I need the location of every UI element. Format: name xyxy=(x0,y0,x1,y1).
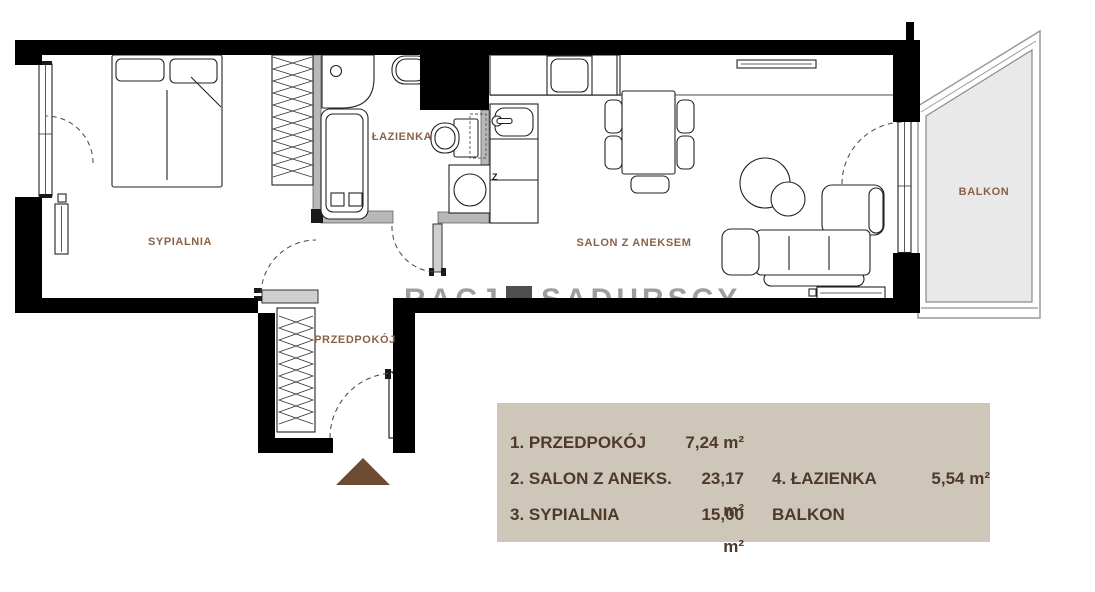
bedroom-door-leaf xyxy=(262,290,318,303)
wall-left-pier xyxy=(15,197,42,245)
legend-room-area: 15,00 m² xyxy=(678,499,744,563)
legend-room-area: 7,24 m² xyxy=(678,427,744,463)
dining-chair xyxy=(631,176,669,193)
bathtub-tap xyxy=(331,193,344,206)
dining-chair xyxy=(605,100,622,133)
dining-table xyxy=(622,91,675,174)
wall-hallway-left xyxy=(258,313,275,453)
legend-row: 1. PRZEDPOKÓJ 7,24 m² xyxy=(510,427,990,463)
sofa-back-cushion xyxy=(869,188,883,233)
balcony-label: BALKON xyxy=(959,186,1010,198)
radiator-valve xyxy=(58,194,66,202)
legend-room-name: BALKON xyxy=(772,499,908,563)
coffee-table-small xyxy=(771,182,805,216)
bedroom-wardrobe xyxy=(272,55,313,185)
hallway-furniture xyxy=(277,308,315,432)
hallway-label: PRZEDPOKÓJ xyxy=(314,333,396,346)
legend-room-area xyxy=(908,427,990,463)
wall-right-upper xyxy=(893,40,920,122)
sofa-armrest xyxy=(722,229,759,275)
sofa-seat xyxy=(756,230,870,275)
legend-row: 2. SALON Z ANEKS. 23,17 m² 4. ŁAZIENKA 5… xyxy=(510,463,990,499)
legend-panel: 1. PRZEDPOKÓJ 7,24 m² 2. SALON Z ANEKS. … xyxy=(497,403,990,542)
window-swing-arc xyxy=(46,116,93,163)
appliance-marker: Z xyxy=(492,172,498,182)
entrance-arrow xyxy=(336,458,390,485)
bed-pillow-left xyxy=(116,59,164,81)
entrance-door-arc xyxy=(330,373,395,438)
wall-hallway-right xyxy=(393,313,415,453)
dining-chair xyxy=(677,100,694,133)
bedroom-label: SYPIALNIA xyxy=(148,236,212,248)
legend-row: 3. SYPIALNIA 15,00 m² BALKON xyxy=(510,499,990,535)
floor-plan-page: { "plan": { "rooms": { "bedroom": "SYPIA… xyxy=(0,0,1095,592)
wall-bottom-living xyxy=(393,298,920,313)
wall-bathroom-block xyxy=(420,40,489,110)
legend-room-area xyxy=(908,499,990,563)
stove xyxy=(547,56,592,95)
living-room-label: SALON Z ANEKSEM xyxy=(577,237,692,249)
corner-washbasin xyxy=(322,55,374,108)
legend-room-name xyxy=(772,427,908,463)
bathroom-label: ŁAZIENKA xyxy=(372,131,432,143)
partition-under-washer xyxy=(438,212,489,223)
door-handle xyxy=(441,268,446,276)
balcony-wall-stub xyxy=(906,22,914,40)
legend-room-name: 3. SYPIALNIA xyxy=(510,499,678,563)
bedroom-door-arc xyxy=(261,240,316,293)
bathroom-door-arc xyxy=(392,226,437,272)
kitchen-faucet-arm xyxy=(497,119,512,124)
bedroom-furniture xyxy=(55,55,313,254)
wall-right-lower xyxy=(893,253,920,313)
bathroom-door-leaf xyxy=(433,224,442,272)
partition-bedroom-bathroom xyxy=(313,55,321,213)
legend-room-name: 1. PRZEDPOKÓJ xyxy=(510,427,678,463)
dining-chair xyxy=(677,136,694,169)
dining-chair xyxy=(605,136,622,169)
kitchen-annex: Z xyxy=(490,55,620,223)
radiator-valve xyxy=(809,289,816,296)
balcony: BALKON xyxy=(906,22,1040,318)
bathtub-tap xyxy=(349,193,362,206)
wall-left-upper xyxy=(15,40,42,65)
wall-bottom-bedroom xyxy=(15,298,258,313)
balcony-door-arc xyxy=(842,122,904,184)
balcony-floor xyxy=(926,50,1032,302)
wall-hallway-bottom xyxy=(258,438,333,453)
